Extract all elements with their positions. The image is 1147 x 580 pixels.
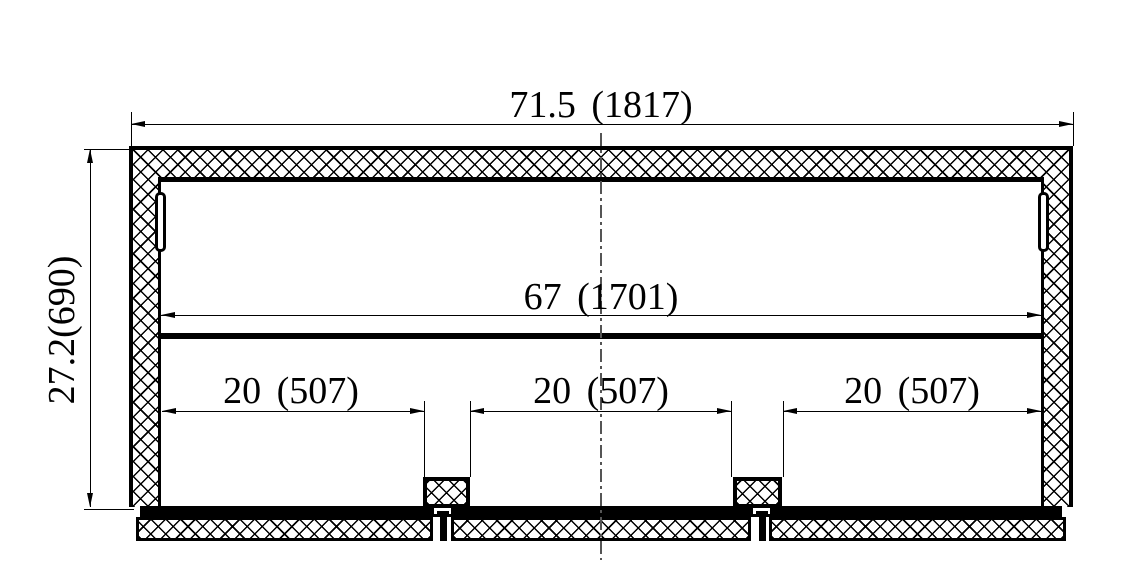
ext-line-left-bottom [84, 509, 134, 510]
arrowhead [1027, 312, 1041, 318]
vertical-centerline [600, 133, 602, 560]
dim-label-bay-right: 20 (507) [844, 372, 980, 410]
rail-joint-stem-1 [440, 517, 447, 541]
ext-line-top-left [131, 112, 132, 146]
dim-label-inner-width: 67 (1701) [524, 278, 679, 316]
rail-joint-stem-2 [759, 517, 766, 541]
arrowhead [161, 312, 175, 318]
arrowhead [87, 149, 93, 163]
arrowhead [410, 408, 424, 414]
dim-label-bay-left: 20 (507) [223, 372, 359, 410]
arrowhead [87, 493, 93, 507]
support-block-2 [733, 477, 782, 508]
liner-clip-right [1038, 192, 1049, 252]
arrowhead [470, 408, 484, 414]
arrowhead [162, 408, 176, 414]
support-block-1 [423, 477, 470, 508]
dim-label-overall-height: 27.2(690) [43, 256, 81, 405]
ext-line-block1-left [424, 401, 425, 477]
drawing-canvas: 71.5 (1817) 27.2(690) 67 (1701) 20 (507)… [0, 0, 1147, 580]
base-rail-right-segment [769, 517, 1066, 541]
dim-label-bay-center: 20 (507) [533, 372, 669, 410]
dim-line-overall-height [90, 149, 91, 507]
arrowhead [783, 408, 797, 414]
liner-clip-left [155, 192, 166, 252]
dim-label-overall-width: 71.5 (1817) [509, 86, 692, 124]
arrowhead [717, 408, 731, 414]
base-rail-left-segment [136, 517, 433, 541]
arrowhead [131, 121, 145, 127]
arrowhead [1059, 121, 1073, 127]
ext-line-top-right [1073, 112, 1074, 146]
ext-line-block2-left [731, 401, 732, 477]
arrowhead [1027, 408, 1041, 414]
